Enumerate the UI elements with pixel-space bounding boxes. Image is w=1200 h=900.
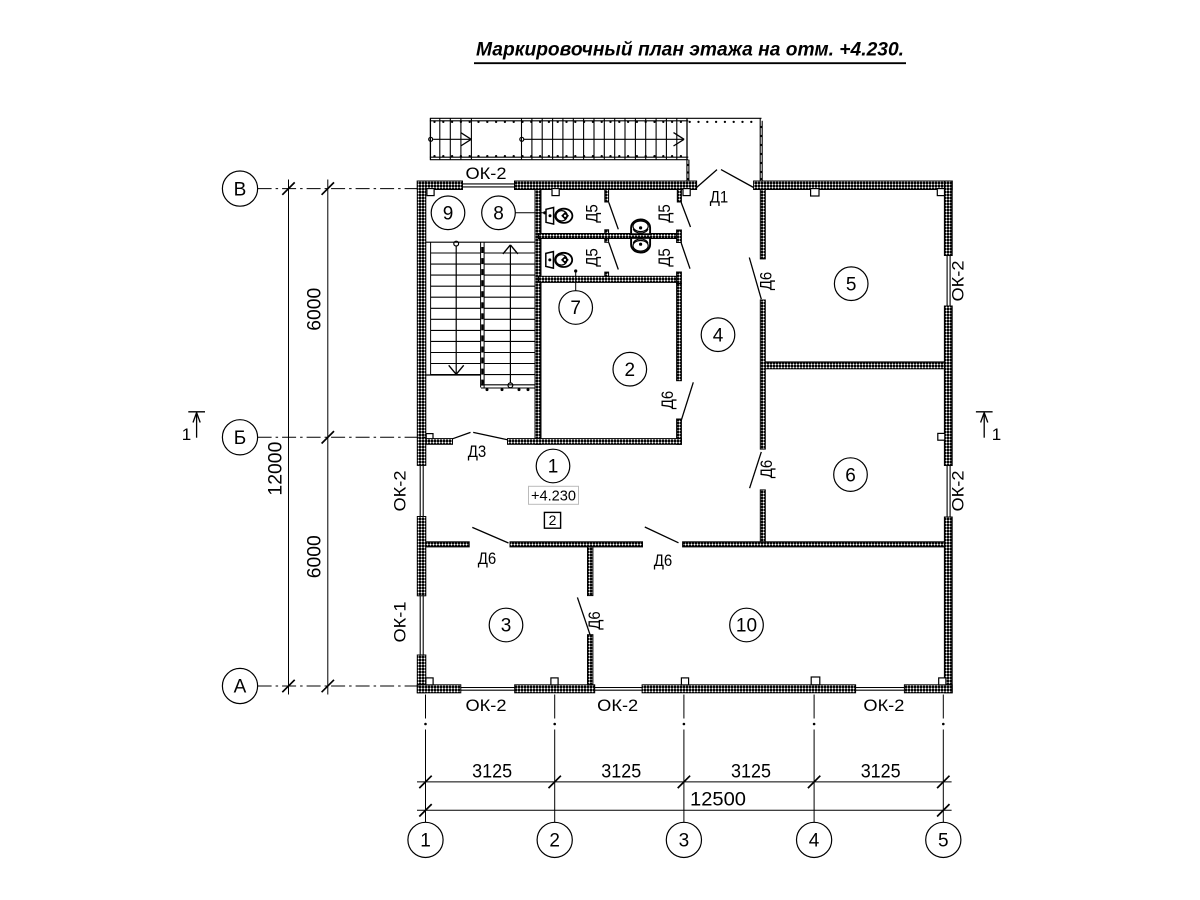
svg-text:ОК-2: ОК-2	[863, 696, 904, 715]
svg-text:3125: 3125	[731, 761, 771, 782]
svg-text:3125: 3125	[472, 761, 512, 782]
svg-text:2: 2	[549, 512, 557, 528]
svg-text:9: 9	[443, 204, 454, 225]
svg-text:ОК-2: ОК-2	[597, 696, 638, 715]
svg-text:1: 1	[548, 457, 559, 478]
svg-text:Д6: Д6	[757, 272, 776, 291]
svg-text:ОК-2: ОК-2	[391, 471, 410, 512]
svg-text:Д5: Д5	[583, 248, 602, 267]
svg-text:12500: 12500	[690, 790, 746, 811]
svg-text:Д6: Д6	[757, 460, 776, 479]
svg-text:5: 5	[846, 274, 857, 295]
svg-text:Д5: Д5	[655, 248, 674, 267]
svg-text:3125: 3125	[861, 761, 901, 782]
svg-text:1: 1	[182, 425, 191, 444]
svg-text:ОК-1: ОК-1	[391, 602, 410, 643]
svg-text:3: 3	[501, 616, 512, 637]
svg-text:А: А	[234, 677, 247, 698]
svg-text:2: 2	[549, 831, 560, 852]
svg-text:8: 8	[493, 204, 504, 225]
svg-text:Д6: Д6	[654, 551, 673, 570]
svg-text:10: 10	[736, 616, 757, 637]
svg-text:Д6: Д6	[478, 549, 497, 568]
svg-text:1: 1	[992, 425, 1001, 444]
svg-text:4: 4	[809, 831, 820, 852]
svg-text:ОК-2: ОК-2	[466, 696, 507, 715]
svg-text:В: В	[234, 179, 247, 200]
svg-text:12000: 12000	[265, 442, 286, 496]
svg-text:Д6: Д6	[658, 391, 677, 410]
svg-text:Маркировочный план этажа на от: Маркировочный план этажа на отм. +4.230.	[476, 40, 904, 61]
svg-text:Д5: Д5	[583, 204, 602, 223]
svg-text:Д1: Д1	[710, 188, 729, 207]
svg-text:2: 2	[625, 360, 636, 381]
svg-text:ОК-2: ОК-2	[949, 471, 968, 512]
svg-text:Д5: Д5	[655, 204, 674, 223]
svg-text:Б: Б	[234, 428, 246, 449]
svg-text:6000: 6000	[305, 288, 326, 331]
svg-text:3125: 3125	[601, 761, 641, 782]
svg-text:6000: 6000	[305, 535, 326, 578]
svg-text:7: 7	[570, 298, 581, 319]
svg-text:ОК-2: ОК-2	[949, 261, 968, 302]
svg-text:Д3: Д3	[468, 442, 487, 461]
svg-text:4: 4	[713, 325, 724, 346]
svg-text:+4.230: +4.230	[531, 487, 576, 504]
svg-text:6: 6	[845, 465, 856, 486]
svg-text:3: 3	[679, 831, 690, 852]
svg-text:ОК-2: ОК-2	[466, 164, 507, 183]
svg-text:5: 5	[938, 831, 949, 852]
svg-text:Д6: Д6	[585, 611, 604, 630]
svg-text:1: 1	[420, 831, 431, 852]
